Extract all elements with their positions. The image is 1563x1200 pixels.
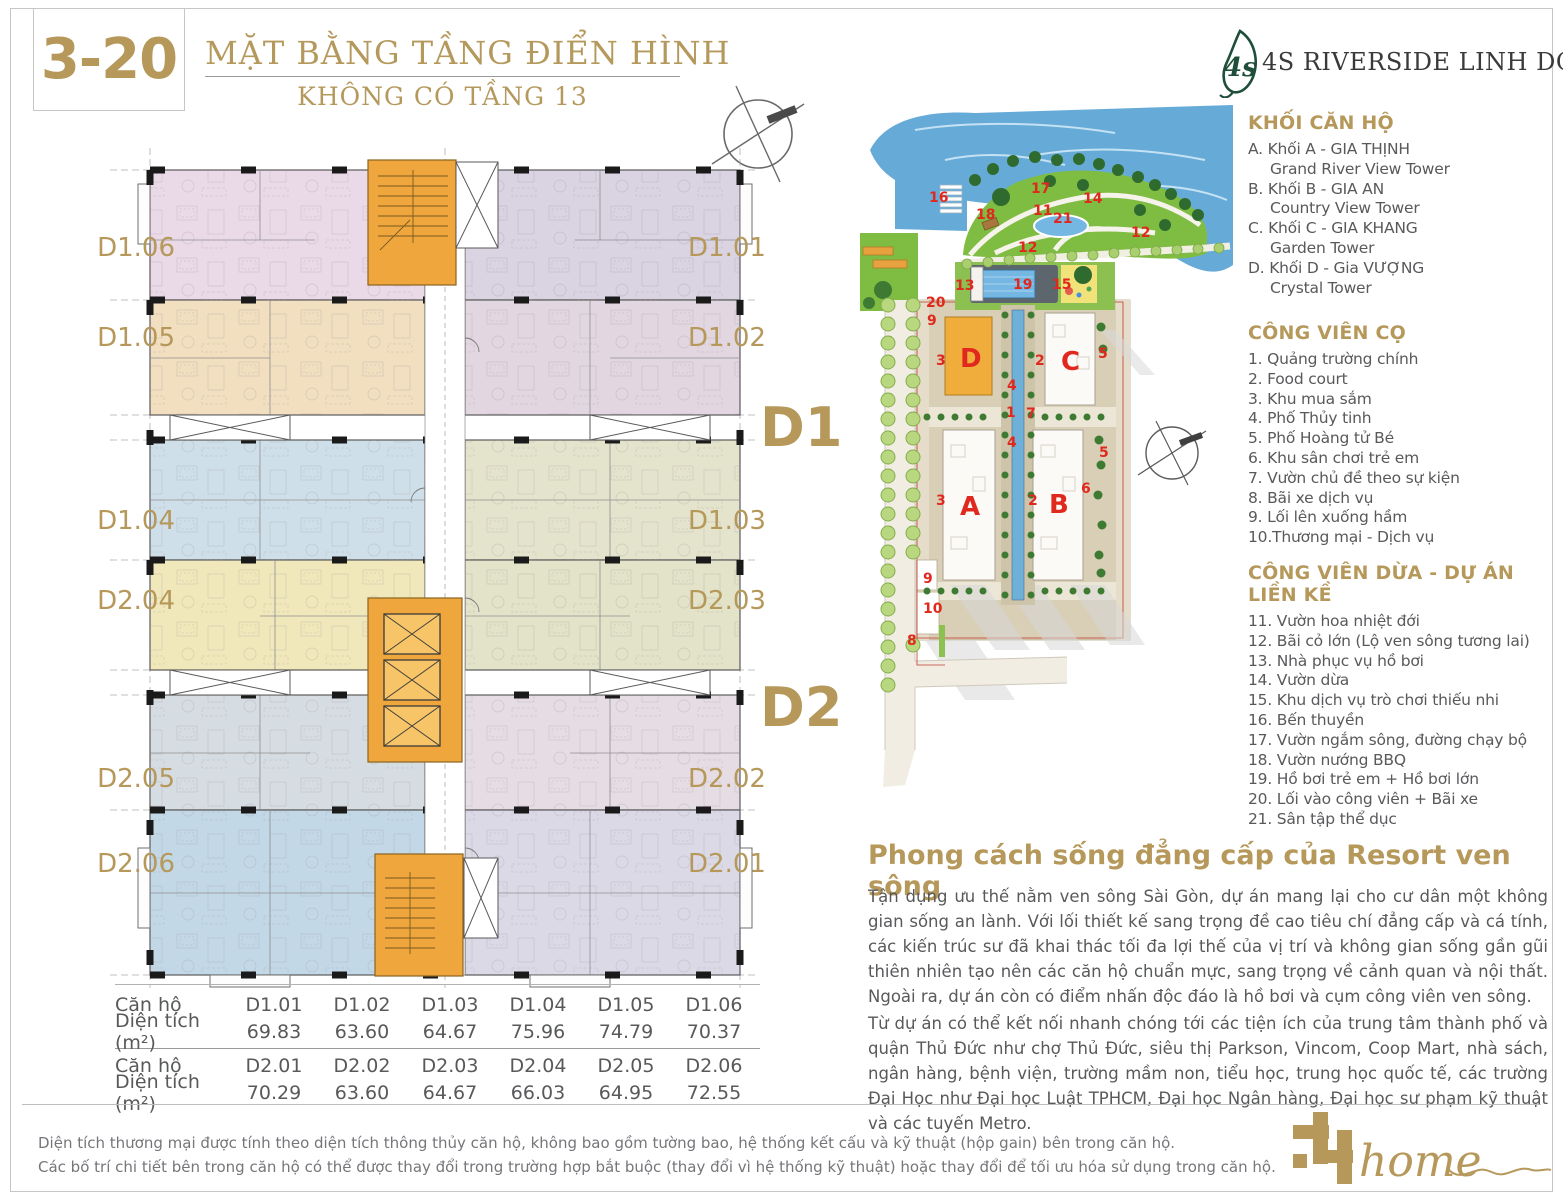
floor-range-code: 3-20 — [33, 8, 185, 111]
unit-label-d2-01: D2.01 — [688, 849, 783, 879]
cell: D1.06 — [670, 994, 758, 1016]
ttl-blocks-icon — [1293, 1112, 1353, 1184]
ttl-home-logo: home — [1287, 1110, 1557, 1190]
zone-label-d1: D1 — [760, 396, 870, 459]
svg-text:5: 5 — [1099, 445, 1109, 461]
brand-leaf-icon: 4s — [1215, 28, 1263, 98]
cell: D2.02 — [318, 1055, 406, 1077]
legend-item: 13. Nhà phục vụ hồ bơi — [1248, 652, 1560, 672]
legend-item: 2. Food court — [1248, 370, 1560, 390]
unit-label-d2-05: D2.05 — [95, 764, 175, 794]
unit-label-d1-05: D1.05 — [95, 323, 175, 353]
legend-item: 11. Vườn hoa nhiệt đới — [1248, 612, 1560, 632]
unit-label-d1-01: D1.01 — [688, 233, 783, 263]
cell: 66.03 — [494, 1082, 582, 1104]
svg-text:11: 11 — [1033, 203, 1052, 219]
legend-line: A. Khối A - GIA THỊNH — [1248, 140, 1560, 160]
legend-item: 18. Vườn nướng BBQ — [1248, 751, 1560, 771]
svg-text:12: 12 — [1131, 225, 1150, 241]
cell: D1.04 — [494, 994, 582, 1016]
area-table: Căn hộ D1.01 D1.02 D1.03 D1.04 D1.05 D1.… — [115, 984, 760, 1106]
legend-item: 4. Phố Thủy tinh — [1248, 409, 1560, 429]
legend-item: 6. Khu sân chơi trẻ em — [1248, 449, 1560, 469]
map-letter-a: A — [960, 492, 980, 522]
promo-paragraph-1: Tận dụng ưu thế nằm ven sông Sài Gòn, dự… — [868, 884, 1548, 1009]
legend-item: 21. Sân tập thể dục — [1248, 810, 1560, 830]
legend-line: C. Khối C - GIA KHANG — [1248, 219, 1560, 239]
svg-text:3: 3 — [936, 353, 946, 369]
table-row-d2-areas: Diện tích (m²) 70.29 63.60 64.67 66.03 6… — [115, 1079, 760, 1106]
svg-text:1: 1 — [1006, 405, 1016, 421]
legend-blocks-header: KHỐI CĂN HỘ — [1248, 112, 1560, 134]
cell: D2.05 — [582, 1055, 670, 1077]
svg-text:6: 6 — [1081, 481, 1091, 497]
legend-item: 9. Lối lên xuống hầm — [1248, 508, 1560, 528]
legend-line: Garden Tower — [1248, 239, 1560, 259]
svg-text:9: 9 — [927, 313, 937, 329]
svg-text:17: 17 — [1031, 181, 1050, 197]
legend-item: 14. Vườn dừa — [1248, 671, 1560, 691]
legend-item: 7. Vườn chủ đề theo sự kiện — [1248, 469, 1560, 489]
legend-palm-park: CÔNG VIÊN CỌ 1. Quảng trường chính 2. Fo… — [1248, 322, 1560, 548]
legend-line: Country View Tower — [1248, 199, 1560, 219]
svg-text:13: 13 — [955, 278, 974, 294]
cell: 63.60 — [318, 1021, 406, 1043]
unit-label-d1-02: D1.02 — [688, 323, 783, 353]
svg-text:4: 4 — [1007, 378, 1017, 394]
legend-item: 1. Quảng trường chính — [1248, 350, 1560, 370]
legend-item: 19. Hồ bơi trẻ em + Hồ bơi lớn — [1248, 770, 1560, 790]
footer-note-1: Diện tích thương mại được tính theo diện… — [38, 1134, 1218, 1152]
legend-line: Crystal Tower — [1248, 279, 1560, 299]
legend-item: 20. Lối vào công viên + Bãi xe — [1248, 790, 1560, 810]
legend-item: 15. Khu dịch vụ trò chơi thiếu nhi — [1248, 691, 1560, 711]
unit-label-d2-02: D2.02 — [688, 764, 783, 794]
footer-divider — [22, 1104, 1541, 1105]
typical-floor-plan — [110, 148, 755, 988]
brand-name: 4S RIVERSIDE LINH DONG — [1262, 48, 1563, 76]
page-title: MẶT BẰNG TẦNG ĐIỂN HÌNH — [205, 34, 680, 72]
unit-label-d2-06: D2.06 — [95, 849, 175, 879]
legend-item: 8. Bãi xe dịch vụ — [1248, 489, 1560, 509]
legend-blocks: KHỐI CĂN HỘ A. Khối A - GIA THỊNH Grand … — [1248, 112, 1560, 298]
map-letter-c: C — [1061, 347, 1080, 377]
legend-item: 12. Bãi cỏ lớn (Lộ ven sông tương lai) — [1248, 632, 1560, 652]
svg-text:7: 7 — [1026, 406, 1036, 422]
pool-complex — [955, 262, 1115, 310]
unit-label-d1-04: D1.04 — [95, 506, 175, 536]
cell: D2.04 — [494, 1055, 582, 1077]
cell: D1.01 — [230, 994, 318, 1016]
title-divider — [205, 76, 680, 77]
floor-range-text: 3-20 — [41, 27, 177, 92]
legend-line: Grand River View Tower — [1248, 160, 1560, 180]
legend-item: 17. Vườn ngắm sông, đường chạy bộ — [1248, 731, 1560, 751]
unit-label-d1-06: D1.06 — [95, 233, 175, 263]
legend-line: B. Khối B - GIA AN — [1248, 180, 1560, 200]
svg-text:15: 15 — [1052, 277, 1071, 293]
stair-core-top — [368, 160, 456, 285]
cell: 70.29 — [230, 1082, 318, 1104]
legend-item: 10.Thương mại - Dịch vụ — [1248, 528, 1560, 548]
cell: 75.96 — [494, 1021, 582, 1043]
svg-text:8: 8 — [907, 633, 917, 649]
svg-text:10: 10 — [923, 601, 943, 617]
floor-plan-brochure-page: 3-20 MẶT BẰNG TẦNG ĐIỂN HÌNH KHÔNG CÓ TẦ… — [0, 0, 1563, 1200]
legend-item: 3. Khu mua sắm — [1248, 390, 1560, 410]
svg-text:9: 9 — [923, 571, 933, 587]
svg-text:19: 19 — [1013, 277, 1032, 293]
legend-item: 5. Phố Hoàng tử Bé — [1248, 429, 1560, 449]
cell: D1.02 — [318, 994, 406, 1016]
legend-item: 16. Bến thuyền — [1248, 711, 1560, 731]
cell: 70.37 — [670, 1021, 758, 1043]
svg-text:18: 18 — [976, 207, 995, 223]
map-letter-d: D — [960, 344, 982, 374]
cell: D1.05 — [582, 994, 670, 1016]
page-subtitle: KHÔNG CÓ TẦNG 13 — [205, 82, 680, 111]
footer-note-2: Các bố trí chi tiết bên trong căn hộ có … — [38, 1158, 1218, 1176]
cell: 72.55 — [670, 1082, 758, 1104]
svg-text:4: 4 — [1007, 435, 1017, 451]
cell: D2.06 — [670, 1055, 758, 1077]
cell: D2.03 — [406, 1055, 494, 1077]
svg-text:2: 2 — [1028, 493, 1038, 509]
cell: 64.67 — [406, 1082, 494, 1104]
unit-label-d2-03: D2.03 — [688, 586, 783, 616]
elevator-core — [368, 598, 462, 762]
svg-text:12: 12 — [1018, 240, 1037, 256]
legend-line: D. Khối D - Gia VƯỢNG — [1248, 259, 1560, 279]
legend-palm-header: CÔNG VIÊN CỌ — [1248, 322, 1560, 344]
svg-text:14: 14 — [1083, 191, 1103, 207]
home-logo-text: home — [1359, 1136, 1482, 1187]
zone-label-d2: D2 — [760, 676, 870, 739]
cell: 63.60 — [318, 1082, 406, 1104]
unit-label-d1-03: D1.03 — [688, 506, 783, 536]
row-label: Diện tích (m²) — [115, 1010, 230, 1054]
svg-text:3: 3 — [936, 493, 946, 509]
legend-coconut-park: CÔNG VIÊN DỪA - DỰ ÁN LIỀN KỀ 11. Vườn h… — [1248, 562, 1560, 830]
svg-text:2: 2 — [1035, 353, 1045, 369]
svg-text:5: 5 — [1098, 346, 1108, 362]
table-row-d1-areas: Diện tích (m²) 69.83 63.60 64.67 75.96 7… — [115, 1018, 760, 1045]
cell: 64.95 — [582, 1082, 670, 1104]
svg-text:21: 21 — [1053, 211, 1072, 227]
cell: 64.67 — [406, 1021, 494, 1043]
cell: 69.83 — [230, 1021, 318, 1043]
svg-text:4s: 4s — [1224, 53, 1257, 83]
svg-text:20: 20 — [926, 295, 946, 311]
unit-label-d2-04: D2.04 — [95, 586, 175, 616]
map-letter-b: B — [1049, 490, 1069, 520]
cell: D1.03 — [406, 994, 494, 1016]
row-label: Diện tích (m²) — [115, 1071, 230, 1115]
cell: D2.01 — [230, 1055, 318, 1077]
map-compass-icon — [1138, 421, 1206, 485]
svg-text:16: 16 — [929, 190, 948, 206]
legend-coconut-header: CÔNG VIÊN DỪA - DỰ ÁN LIỀN KỀ — [1248, 562, 1560, 606]
cell: 74.79 — [582, 1021, 670, 1043]
